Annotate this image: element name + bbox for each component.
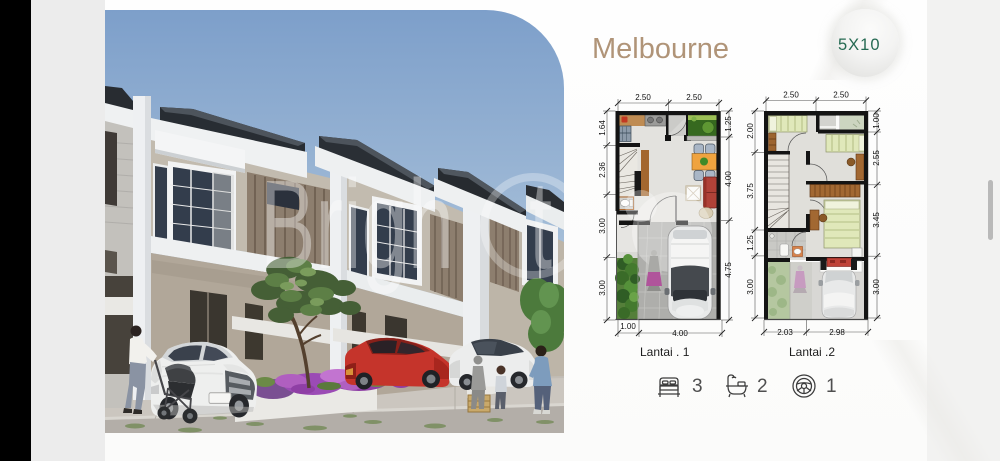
svg-text:3.00: 3.00: [598, 218, 607, 234]
svg-text:4.00: 4.00: [672, 329, 688, 338]
svg-text:1.25: 1.25: [724, 116, 733, 132]
svg-text:1.25: 1.25: [746, 235, 755, 251]
svg-text:4.75: 4.75: [724, 262, 733, 278]
svg-text:Brigh: Brigh: [260, 154, 454, 296]
svg-text:2.55: 2.55: [872, 150, 881, 166]
svg-text:2.00: 2.00: [746, 123, 755, 139]
svg-text:1.00: 1.00: [620, 322, 636, 331]
svg-text:2.50: 2.50: [833, 91, 849, 100]
svg-text:4.00: 4.00: [724, 171, 733, 187]
svg-text:2.98: 2.98: [829, 328, 845, 337]
svg-text:2.50: 2.50: [635, 93, 651, 102]
svg-text:3.00: 3.00: [872, 279, 881, 295]
svg-text:2.50: 2.50: [686, 93, 702, 102]
svg-text:1.00: 1.00: [872, 113, 881, 129]
svg-text:3.75: 3.75: [746, 183, 755, 199]
svg-text:2.03: 2.03: [777, 328, 793, 337]
svg-text:2.36: 2.36: [598, 162, 607, 178]
svg-text:3.00: 3.00: [598, 280, 607, 296]
svg-text:3.45: 3.45: [872, 212, 881, 228]
svg-text:1.64: 1.64: [598, 120, 607, 136]
svg-text:3.00: 3.00: [746, 279, 755, 295]
svg-text:2.50: 2.50: [783, 91, 799, 100]
